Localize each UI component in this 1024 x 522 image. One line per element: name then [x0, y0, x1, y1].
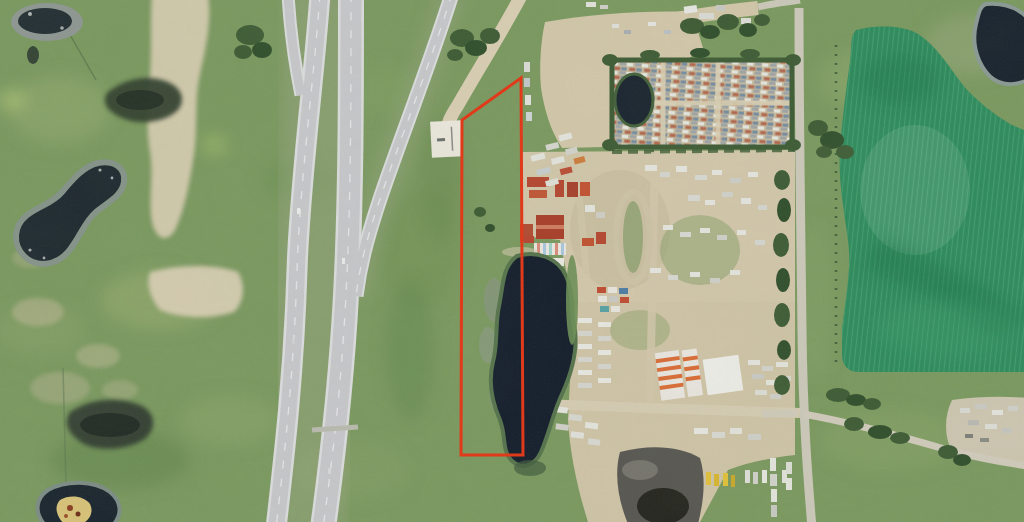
grain-overlay	[0, 0, 1024, 522]
aerial-scene	[0, 0, 1024, 522]
satellite-map-image	[0, 0, 1024, 522]
